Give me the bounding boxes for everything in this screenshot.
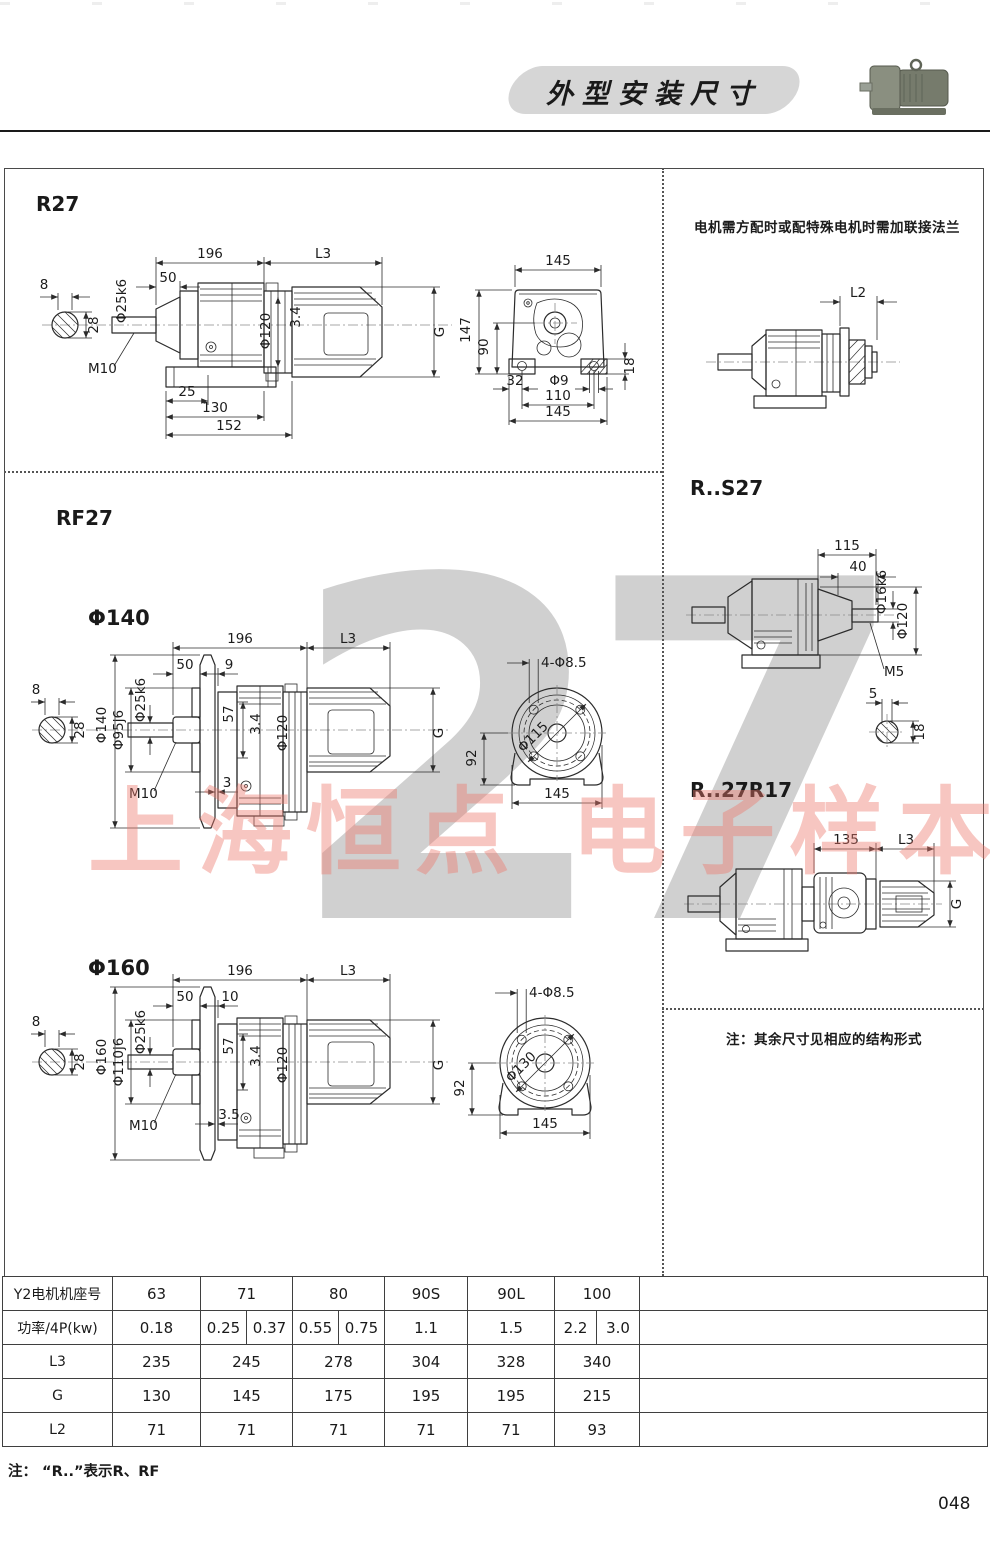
dim-label: Φ140	[94, 707, 110, 743]
page-title: 外型安装尺寸	[505, 72, 803, 111]
dim-label: G	[431, 1060, 447, 1070]
dim-label: M5	[884, 664, 904, 680]
table-cell: 245	[201, 1345, 293, 1379]
dim-label: Φ110j6	[111, 1038, 127, 1087]
f160-shaft-key-section: 8 28	[31, 1014, 88, 1084]
dim-label: 57	[221, 1037, 237, 1054]
dim-label: 40	[849, 559, 866, 575]
rf27-f160-side-drawing: 8 28 196 L3 50 10 Φ160 Φ110j6 Φ25k6 57 3…	[28, 962, 478, 1232]
dim-label: 152	[216, 418, 242, 434]
dim-label: 130	[202, 400, 228, 416]
dim-label: L3	[340, 963, 356, 979]
r27-side-view-drawing: 8 28 M10 Φ25k6 196 L3 50 Φ120 3.4 G 25 1…	[28, 225, 473, 447]
header-divider	[0, 130, 990, 132]
dim-label: 196	[227, 963, 253, 979]
f140-dimensions: 196 L3 50 9 Φ140 Φ95j6 Φ25k6 57 3.4 Φ120…	[94, 631, 447, 828]
table-cell: 0.55	[293, 1311, 339, 1345]
table-cell: 71	[293, 1413, 385, 1447]
dim-label: Φ95j6	[111, 710, 127, 750]
f140-gear-unit-outline	[128, 655, 390, 828]
table-cell: 0.37	[247, 1311, 293, 1345]
dim-label: M10	[88, 361, 117, 377]
dim-label: 3.5	[218, 1107, 239, 1123]
dim-label: 32	[506, 373, 523, 389]
r27-housing-outline	[509, 290, 613, 379]
dim-label: Φ25k6	[114, 279, 130, 323]
dim-label: Φ120	[895, 603, 911, 639]
table-cell: 195	[468, 1379, 555, 1413]
dim-label: 3.4	[248, 713, 264, 734]
table-cell: 215	[555, 1379, 640, 1413]
table-row-g: G 130 145 175 195 195 215	[3, 1379, 988, 1413]
dim-label: 145	[545, 404, 571, 420]
row-label: L3	[3, 1345, 113, 1379]
dim-label: 3.4	[248, 1045, 264, 1066]
dim-label: 110	[545, 388, 571, 404]
table-cell: 90L	[468, 1277, 555, 1311]
table-cell: 3.0	[597, 1311, 640, 1345]
dim-label: 4-Φ8.5	[541, 655, 587, 671]
dim-label: Φ16k6	[874, 570, 890, 614]
dim-label: 147	[458, 317, 474, 343]
f160-flange-dimensions: 4-Φ8.5 Φ130 92 145	[452, 985, 590, 1139]
dim-label: 92	[464, 749, 480, 766]
dim-label: L3	[315, 246, 331, 262]
dim-label: 57	[221, 705, 237, 722]
r27r17-gear-unit-outline	[688, 869, 934, 951]
table-cell: 0.25	[201, 1311, 247, 1345]
dim-label: 18	[622, 357, 638, 374]
dim-label: Φ9	[549, 373, 568, 389]
scan-edge-marks	[0, 2, 990, 5]
f160-dimensions: 196 L3 50 10 Φ160 Φ110j6 Φ25k6 57 3.4 Φ1…	[94, 963, 447, 1160]
table-row-power: 功率/4P(kw) 0.18 0.25 0.37 0.55 0.75 1.1 1…	[3, 1311, 988, 1345]
dim-label: 50	[176, 657, 193, 673]
table-cell: 1.5	[468, 1311, 555, 1345]
table-cell: 278	[293, 1345, 385, 1379]
dim-label: L3	[340, 631, 356, 647]
table-cell: 304	[385, 1345, 468, 1379]
table-cell: 100	[555, 1277, 640, 1311]
flange-note: 电机需方配时或配特殊电机时需加联接法兰	[694, 216, 980, 236]
table-cell: 71	[468, 1413, 555, 1447]
page-number: 048	[938, 1494, 970, 1514]
table-cell-empty	[640, 1379, 988, 1413]
dim-label: 5	[869, 686, 878, 702]
table-cell: 93	[555, 1413, 640, 1447]
table-cell-empty	[640, 1345, 988, 1379]
table-cell-empty	[640, 1311, 988, 1345]
r27-shaft-key-section	[48, 305, 82, 347]
rs27-shaft-key-section: 5 18	[866, 686, 928, 754]
structure-note: 注：其余尺寸见相应的结构形式	[726, 1028, 922, 1048]
table-cell: 235	[113, 1345, 201, 1379]
table-cell-empty	[640, 1277, 988, 1311]
left-section-divider	[4, 471, 662, 473]
dim-label: 3	[223, 775, 232, 791]
rf27-f140-side-drawing: 8 28 196 L3 50 9 Φ140 Φ95j6 Φ25k6 57 3.4…	[28, 630, 478, 900]
dim-label: 8	[40, 277, 49, 293]
table-cell: 90S	[385, 1277, 468, 1311]
section-title-r27: R27	[36, 192, 79, 216]
dimension-table: Y2电机机座号 63 71 80 90S 90L 100 功率/4P(kw) 0…	[2, 1276, 988, 1447]
dim-label: 8	[32, 1014, 41, 1030]
f160-gear-unit-outline	[128, 987, 390, 1160]
l2-adapter-view-drawing: L2	[700, 282, 985, 430]
dim-label: Φ25k6	[133, 1010, 149, 1054]
dim-label: 28	[72, 721, 88, 738]
table-cell: 130	[113, 1379, 201, 1413]
l2-gear-unit-outline	[718, 328, 877, 408]
f140-flange-dimensions: 4-Φ8.5 Φ115 92 145	[464, 655, 602, 809]
dim-label: Φ120	[258, 313, 274, 349]
dim-label: 8	[32, 682, 41, 698]
dim-label: 145	[545, 253, 571, 269]
dim-label: L2	[850, 285, 866, 301]
product-photo-gear-motor	[858, 54, 962, 122]
right-section-divider	[662, 1008, 984, 1010]
table-cell: 328	[468, 1345, 555, 1379]
table-row-l2: L2 71 71 71 71 71 93	[3, 1413, 988, 1447]
r27-gear-unit-outline	[112, 283, 382, 387]
dim-label: G	[431, 728, 447, 738]
dim-label: 28	[86, 316, 102, 333]
table-cell: 340	[555, 1345, 640, 1379]
row-label: G	[3, 1379, 113, 1413]
f140-shaft-key-section: 8 28	[31, 682, 88, 752]
r27-dimensions: 8 28 M10 Φ25k6 196 L3 50 Φ120 3.4 G 25 1…	[40, 246, 448, 439]
dim-label: 10	[221, 989, 238, 1005]
dim-label: M10	[129, 1118, 158, 1134]
dim-label: M10	[129, 786, 158, 802]
f140-flange-front-drawing: 4-Φ8.5 Φ115 92 145	[470, 645, 670, 875]
table-cell: 2.2	[555, 1311, 597, 1345]
table-cell: 71	[201, 1413, 293, 1447]
r27-front-dimensions: 145 147 90 18 32 Φ9 110 145	[458, 253, 638, 425]
dim-label: 135	[833, 832, 859, 848]
l2-dimensions: L2	[820, 285, 897, 340]
table-cell: 71	[385, 1413, 468, 1447]
dim-label: 196	[197, 246, 223, 262]
dim-label: 28	[72, 1053, 88, 1070]
table-cell: 80	[293, 1277, 385, 1311]
dim-label: 145	[544, 786, 570, 802]
dim-label: 145	[532, 1116, 558, 1132]
dim-label: G	[949, 899, 965, 909]
table-row-frame-size: Y2电机机座号 63 71 80 90S 90L 100	[3, 1277, 988, 1311]
table-cell: 63	[113, 1277, 201, 1311]
table-cell: 1.1	[385, 1311, 468, 1345]
dim-label: Φ160	[94, 1039, 110, 1075]
table-cell: 195	[385, 1379, 468, 1413]
dim-label: 196	[227, 631, 253, 647]
r27r17-dimensions: 135 L3 G	[814, 832, 965, 927]
dim-label: 50	[159, 270, 176, 286]
dim-label: Φ25k6	[133, 678, 149, 722]
r27-front-view-drawing: 145 147 90 18 32 Φ9 110 145	[455, 237, 685, 447]
table-cell-empty	[640, 1413, 988, 1447]
dim-label: G	[432, 327, 448, 337]
dim-label: 25	[178, 384, 195, 400]
dim-label: 3.4	[288, 306, 304, 327]
row-label: L2	[3, 1413, 113, 1447]
dim-label: L3	[898, 832, 914, 848]
section-title-rf27: RF27	[56, 506, 113, 530]
dim-label: 4-Φ8.5	[529, 985, 575, 1001]
table-cell: 0.75	[339, 1311, 385, 1345]
dim-label: 115	[834, 538, 860, 554]
f160-flange-front-drawing: 4-Φ8.5 Φ130 92 145	[458, 975, 658, 1205]
dim-label: 18	[912, 723, 928, 740]
rs27-drawing: 115 40 Φ16k6 Φ120 M5 5 18	[680, 535, 985, 785]
footer-note: 注： “R..”表示R、RF	[8, 1460, 159, 1481]
subsection-title-f140: Φ140	[88, 606, 150, 630]
dim-label: 92	[452, 1079, 468, 1096]
table-cell: 71	[113, 1413, 201, 1447]
row-label: Y2电机机座号	[3, 1277, 113, 1311]
dim-label: 90	[476, 338, 492, 355]
section-title-rs27: R..S27	[690, 476, 763, 500]
row-label: 功率/4P(kw)	[3, 1311, 113, 1345]
r27r17-drawing: 135 L3 G	[680, 835, 985, 1005]
dim-label: Φ120	[275, 715, 291, 751]
table-row-l3: L3 235 245 278 304 328 340	[3, 1345, 988, 1379]
dim-label: 50	[176, 989, 193, 1005]
table-cell: 145	[201, 1379, 293, 1413]
dim-label: 9	[225, 657, 234, 673]
table-cell: 175	[293, 1379, 385, 1413]
table-cell: 0.18	[113, 1311, 201, 1345]
dim-label: Φ120	[275, 1047, 291, 1083]
table-cell: 71	[201, 1277, 293, 1311]
